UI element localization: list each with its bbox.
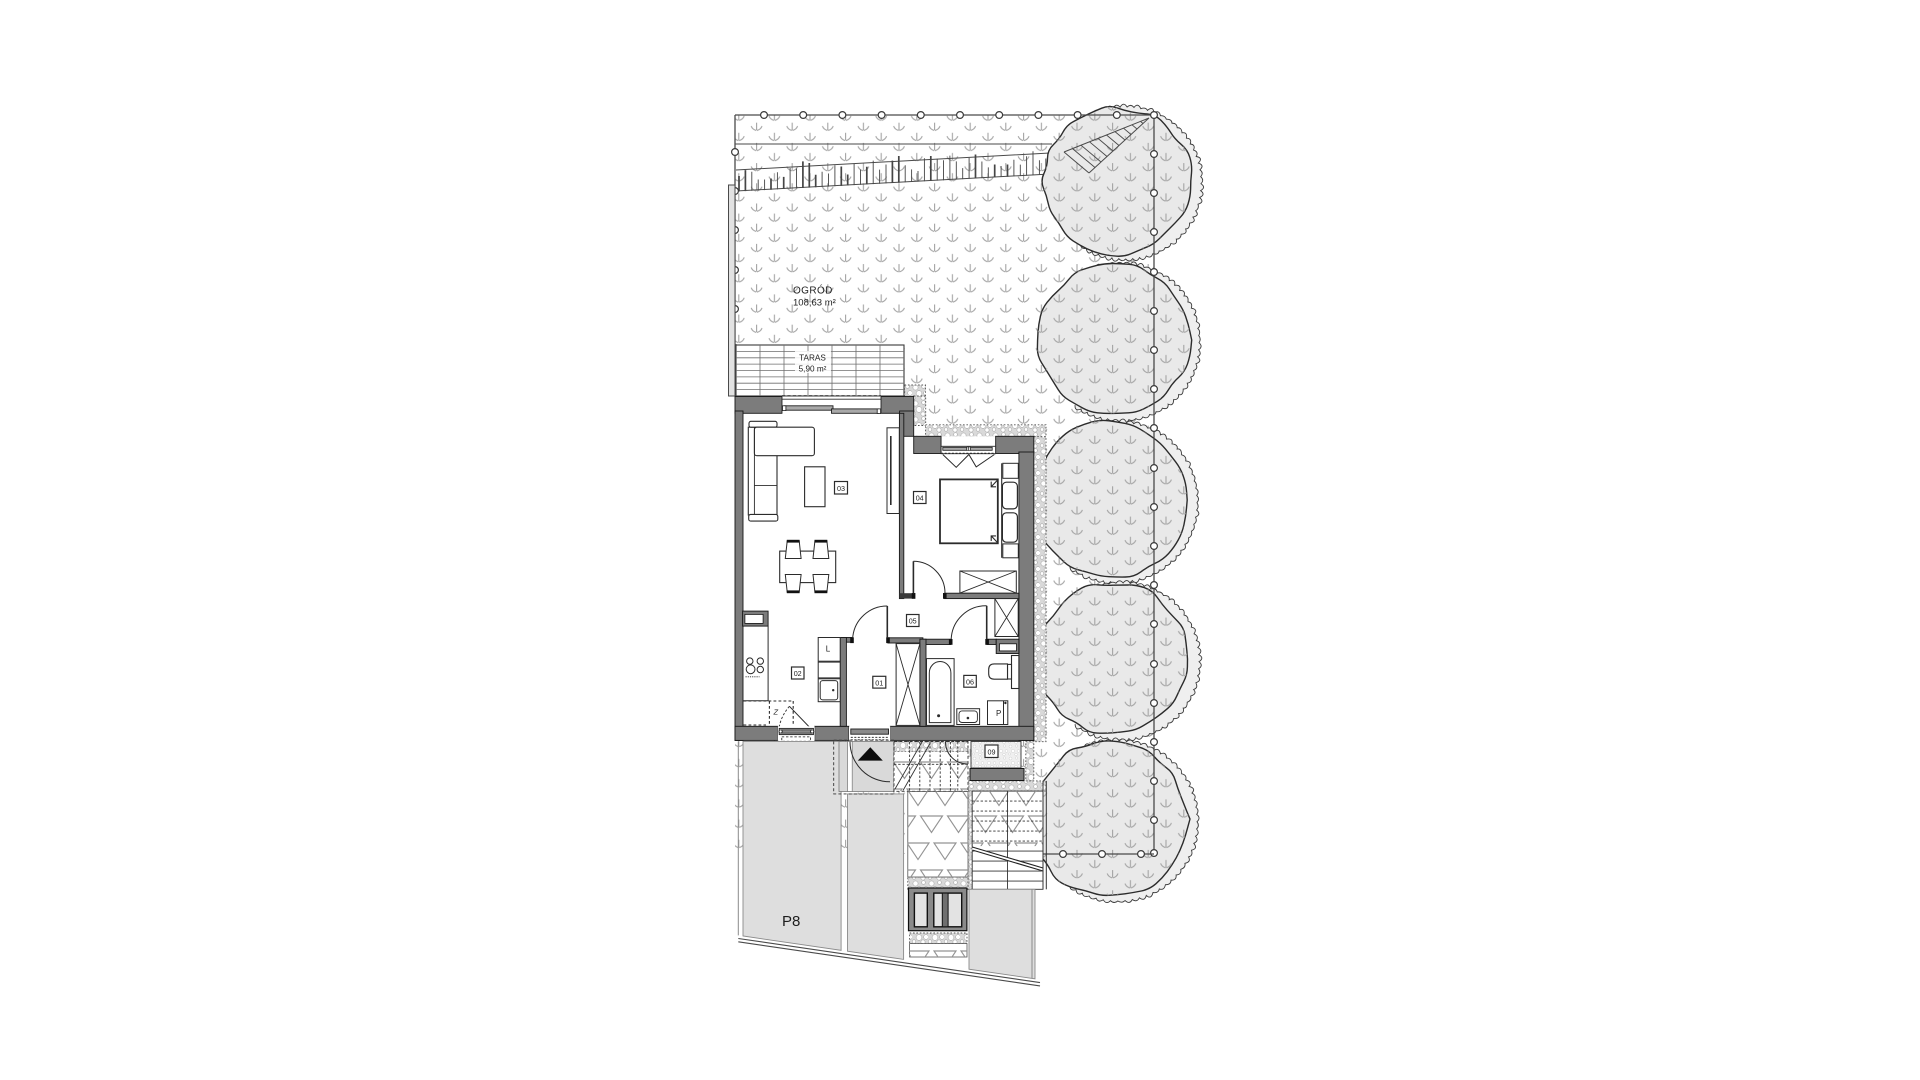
svg-text:TARAS: TARAS [799,354,826,363]
svg-text:Z: Z [773,708,779,717]
svg-text:P8: P8 [782,913,800,930]
svg-text:05: 05 [909,617,917,626]
svg-text:OGRÓD: OGRÓD [793,284,833,297]
svg-text:P: P [996,709,1001,718]
svg-text:06: 06 [966,677,974,686]
svg-text:01: 01 [875,678,883,687]
svg-text:02: 02 [794,669,802,678]
svg-text:108,63 m²: 108,63 m² [793,298,836,309]
svg-text:09: 09 [988,748,996,757]
svg-text:L: L [826,645,831,654]
svg-text:5,90 m²: 5,90 m² [799,365,827,374]
svg-text:04: 04 [916,494,924,503]
svg-text:03: 03 [837,484,845,493]
